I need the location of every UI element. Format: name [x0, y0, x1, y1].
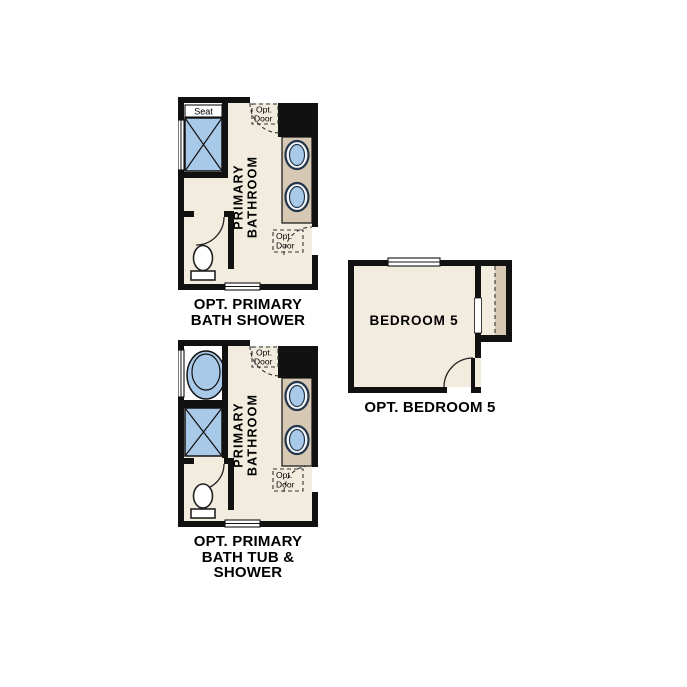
wall-block — [278, 346, 312, 378]
interior-wall — [178, 172, 228, 178]
opt-door-label: Door — [276, 480, 295, 490]
toilet-bowl — [194, 484, 213, 508]
toilet-tank — [191, 271, 215, 280]
plan-caption: OPT. PRIMARY BATH SHOWER — [178, 297, 318, 328]
opt-door-label: Opt. — [276, 231, 292, 241]
plan-primary-bath-shower: Seat — [178, 97, 318, 328]
toilet-tank — [191, 509, 215, 518]
plan-caption: OPT. PRIMARY BATH TUB & SHOWER — [178, 534, 318, 581]
caption-line: OPT. PRIMARY — [178, 534, 318, 550]
closet-opening — [475, 298, 482, 333]
wall-block — [278, 103, 312, 137]
opt-door-label: Door — [276, 241, 295, 251]
interior-wall — [475, 266, 481, 298]
closet-shelf — [495, 266, 506, 335]
door-leaf — [471, 358, 475, 387]
room-label: BEDROOM 5 — [370, 313, 459, 328]
plan-bedroom-5-drawing: BEDROOM 5 — [348, 257, 512, 395]
sink-bowl — [290, 187, 305, 208]
room-label: BATHROOM — [246, 394, 260, 476]
exterior-wall — [178, 97, 250, 103]
sink-bowl — [290, 145, 305, 166]
interior-wall — [222, 103, 228, 172]
exterior-wall — [348, 260, 354, 393]
room-label: BATHROOM — [246, 156, 260, 238]
interior-wall — [178, 400, 228, 408]
opt-door-label: Door — [254, 114, 273, 124]
plan-bedroom-5: BEDROOM 5 OPT. BEDROOM 5 — [348, 257, 512, 416]
floorplan-canvas: Seat — [0, 0, 687, 687]
sink-bowl — [290, 386, 305, 407]
exterior-wall — [348, 387, 447, 393]
shower-seat-label: Seat — [194, 107, 213, 117]
sink-bowl — [290, 430, 305, 451]
exterior-wall — [312, 346, 318, 467]
exterior-wall — [471, 387, 481, 393]
caption-line: BATH TUB & — [178, 550, 318, 566]
caption-line: SHOWER — [178, 565, 318, 581]
caption-line: BATH SHOWER — [178, 313, 318, 329]
plan-primary-bath-shower-drawing: Seat — [178, 97, 318, 293]
room-label: PRIMARY — [232, 164, 246, 230]
opt-door-label: Door — [254, 357, 273, 367]
plan-primary-bath-tub-shower: Opt. Door Opt. Door PRIMARY BATHROOM OPT… — [178, 340, 318, 581]
caption-line: OPT. BEDROOM 5 — [348, 400, 512, 416]
caption-line: OPT. PRIMARY — [178, 297, 318, 313]
exterior-wall — [312, 492, 318, 527]
opt-door-label: Opt. — [276, 470, 292, 480]
room-label: PRIMARY — [232, 402, 246, 468]
plan-caption: OPT. BEDROOM 5 — [348, 400, 512, 416]
exterior-wall — [312, 255, 318, 290]
toilet-bowl — [194, 246, 213, 271]
closet-wall — [506, 260, 512, 342]
plan-primary-bath-tub-shower-drawing: Opt. Door Opt. Door PRIMARY BATHROOM — [178, 340, 318, 530]
exterior-wall — [178, 340, 250, 346]
exterior-wall — [312, 103, 318, 227]
